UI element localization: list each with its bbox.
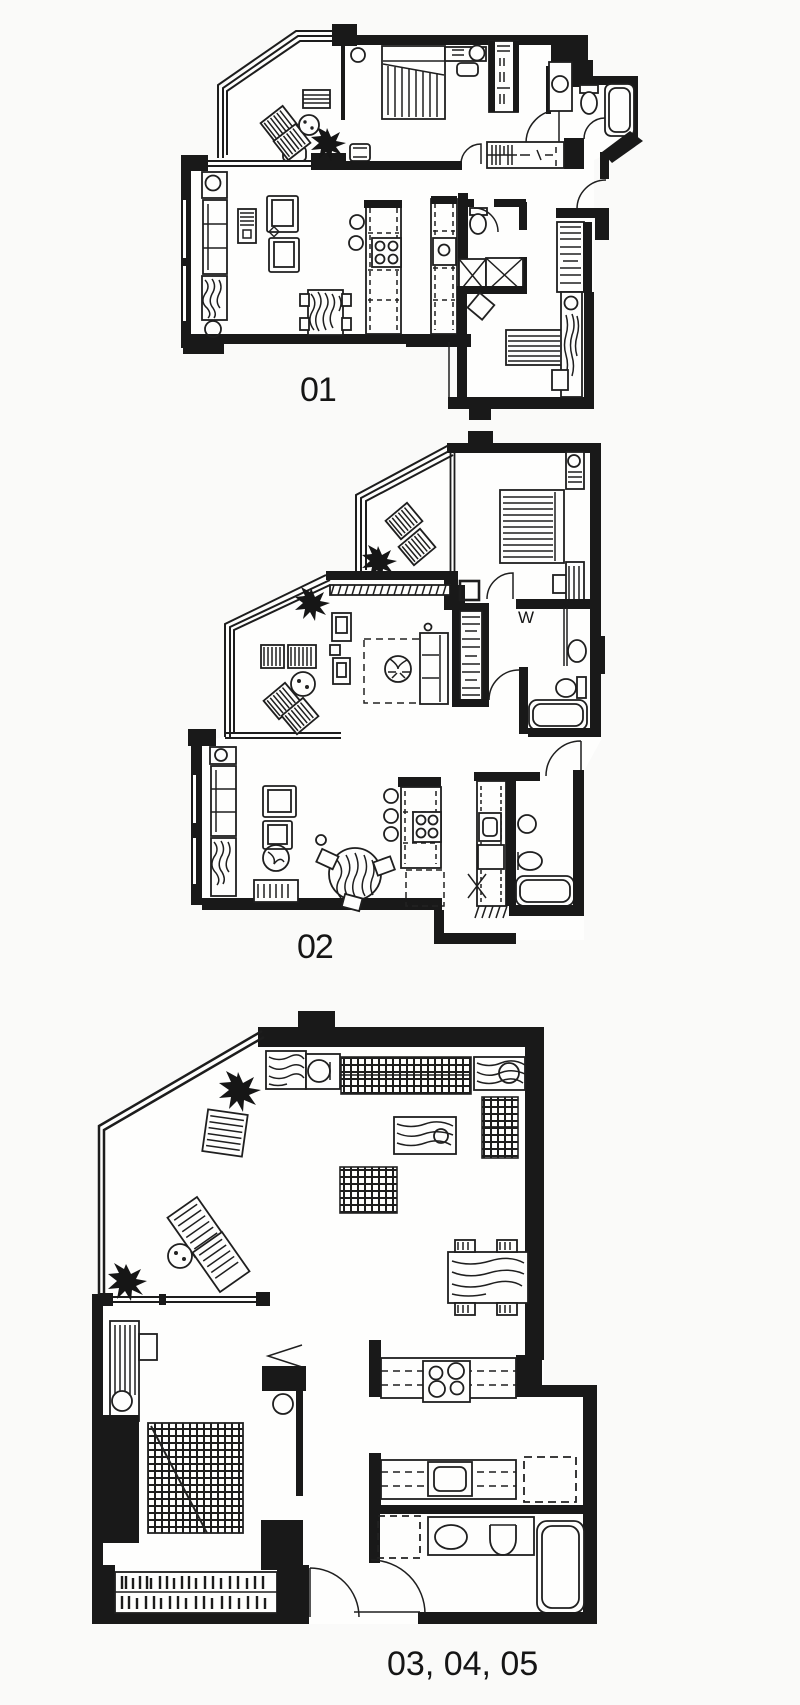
svg-text:02: 02 xyxy=(297,928,333,966)
svg-text:03, 04, 05: 03, 04, 05 xyxy=(387,1645,538,1683)
svg-text:01: 01 xyxy=(300,371,336,409)
svg-text:W: W xyxy=(518,608,534,627)
